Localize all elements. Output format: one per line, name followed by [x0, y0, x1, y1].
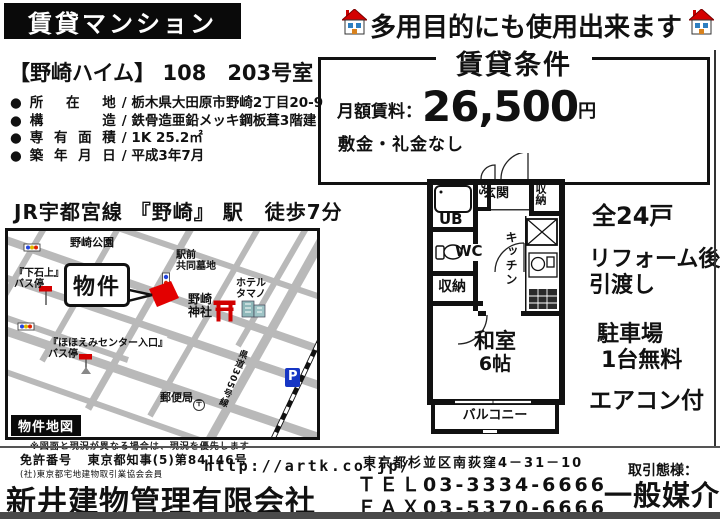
detail-value: 平成3年7月	[131, 148, 204, 166]
map-label-line: 『下石上』	[14, 269, 64, 280]
page-title-text: 賃貸マンション	[28, 4, 217, 39]
feature-line: 引渡し	[589, 273, 720, 299]
feature-parking: 駐車場 1台無料	[597, 322, 682, 374]
bathtub-icon	[435, 186, 471, 212]
map-label-line: タマノ	[236, 290, 266, 301]
detail-separator: /	[122, 148, 127, 166]
room-label-storage-mid: 収納	[438, 280, 466, 294]
detail-row: ● 構造 / 鉄骨造亜鉛メッキ鋼板葺3階建	[10, 113, 323, 131]
page-title: 賃貸マンション	[4, 3, 241, 39]
traffic-light-icon	[24, 244, 40, 251]
detail-value: 鉄骨造亜鉛メッキ鋼板葺3階建	[131, 113, 316, 131]
footer-divider	[0, 446, 720, 448]
detail-row: ● 築年月日 / 平成3年7月	[10, 148, 323, 166]
map-label-line: 共同墓地	[176, 262, 216, 273]
property-details: ● 所在地 / 栃木県大田原市野崎2丁目20-9 ● 構造 / 鉄骨造亜鉛メッキ…	[10, 95, 323, 165]
detail-row: ● 所在地 / 栃木県大田原市野崎2丁目20-9	[10, 95, 323, 113]
feature-line: 全24戸	[592, 203, 673, 229]
bullet-icon: ●	[10, 130, 22, 148]
detail-value: 栃木県大田原市野崎2丁目20-9	[131, 95, 323, 113]
rent-unit: 円	[578, 97, 596, 126]
feature-line: 1台無料	[601, 348, 682, 374]
rent-row: 月額賃料： 26,500 円	[337, 88, 596, 126]
detail-value: 1K 25.2㎡	[131, 130, 202, 148]
feature-aircon: エアコン付	[589, 388, 704, 414]
tagline: 多用目的にも使用出来ます	[370, 7, 688, 44]
detail-label: 構造	[30, 113, 116, 131]
map-legend: 物件地図	[11, 415, 81, 436]
stove-icon	[529, 289, 557, 309]
closet-icon	[527, 219, 557, 245]
property-name: 【野崎ハイム】	[9, 61, 155, 85]
map-label-line: 野崎	[188, 293, 212, 306]
deposit-note: 敷金・礼金なし	[338, 130, 464, 155]
map-label-line: 『ほほえみセンター入口』	[48, 339, 168, 350]
room-label-ub: UB	[439, 212, 463, 227]
map-label-busstop2: 『ほほえみセンター入口』 バス停	[48, 339, 168, 360]
map-label-shrine: 野崎 神社	[188, 293, 212, 318]
detail-label: 築年月日	[30, 148, 116, 166]
right-border-rule	[714, 50, 716, 446]
room-label-balcony: バルコニー	[445, 409, 545, 422]
map-label-busstop1: 『下石上』 バス停	[14, 269, 64, 290]
bullet-icon: ●	[10, 148, 22, 166]
room-label-wc: WC	[455, 244, 483, 259]
map-label-hotel: ホテル タマノ	[236, 279, 266, 300]
map-label-cemetery: 駅前 共同墓地	[176, 251, 216, 272]
map-label-park: 野崎公園	[70, 237, 114, 249]
room-label-storage-top: 収納	[535, 183, 546, 205]
room-label-washitsu: 和室	[445, 331, 545, 352]
post-office-mark: 〒	[195, 400, 203, 408]
map-graphic	[8, 231, 317, 437]
detail-row: ● 専有面積 / 1K 25.2㎡	[10, 130, 323, 148]
detail-separator: /	[122, 130, 127, 148]
feature-line: エアコン付	[589, 388, 704, 414]
map-label-line: バス停	[48, 350, 168, 361]
parking-letter: P	[288, 370, 298, 384]
house-icon	[342, 9, 367, 39]
rent-label: 月額賃料：	[337, 97, 422, 126]
station-access: JR宇都宮線 『野崎』 駅 徒歩7分	[14, 196, 343, 225]
bullet-icon: ●	[10, 95, 22, 113]
room-label-ps: PS	[476, 182, 485, 195]
deal-type: 一般媒介	[604, 474, 720, 514]
map-label-line: 神社	[188, 306, 212, 319]
detail-separator: /	[122, 113, 127, 131]
property-callout: 物件	[64, 263, 130, 307]
map-label-post-office: 郵便局	[160, 392, 193, 404]
rent-value: 26,500	[422, 88, 578, 126]
room-label-entrance: 玄関	[483, 187, 509, 200]
floor-plan: 玄関 収納 PS UB WC 収納 キッチン 和室 6帖 バルコニー	[425, 153, 570, 443]
bullet-icon: ●	[10, 113, 22, 131]
location-map: 野崎公園 『下石上』 バス停 駅前 共同墓地 ホテル タマノ 野崎 神社 『ほほ…	[5, 228, 320, 440]
sink-icon	[529, 253, 557, 277]
bottom-bar	[0, 512, 720, 519]
license-label: 免許番号	[20, 453, 72, 467]
map-label-line: バス停	[14, 280, 64, 291]
map-label-line: ホテル	[236, 279, 266, 290]
room-label-kitchen: キッチン	[505, 231, 517, 287]
feature-renovated: リフォーム後 引渡し	[589, 247, 720, 299]
traffic-light-icon	[18, 323, 34, 330]
feature-total-units: 全24戸	[592, 203, 673, 229]
rental-flyer: 賃貸マンション 多用目的にも使用出来ます 【野崎ハイム】 108 203号室 ●	[0, 0, 720, 519]
terms-title: 賃貸条件	[436, 43, 592, 82]
house-icon	[689, 9, 714, 39]
company-address: 東京都杉並区南荻窪4－31－10	[363, 452, 583, 471]
detail-separator: /	[122, 95, 127, 113]
detail-label: 専有面積	[30, 130, 116, 148]
feature-line: リフォーム後	[589, 247, 720, 273]
map-label-line: 駅前	[176, 251, 216, 262]
room-size: 6帖	[445, 355, 545, 374]
property-title: 【野崎ハイム】 108 203号室	[9, 57, 313, 87]
property-unit: 108 203号室	[162, 61, 313, 85]
feature-line: 駐車場	[597, 322, 682, 348]
detail-label: 所在地	[30, 95, 116, 113]
